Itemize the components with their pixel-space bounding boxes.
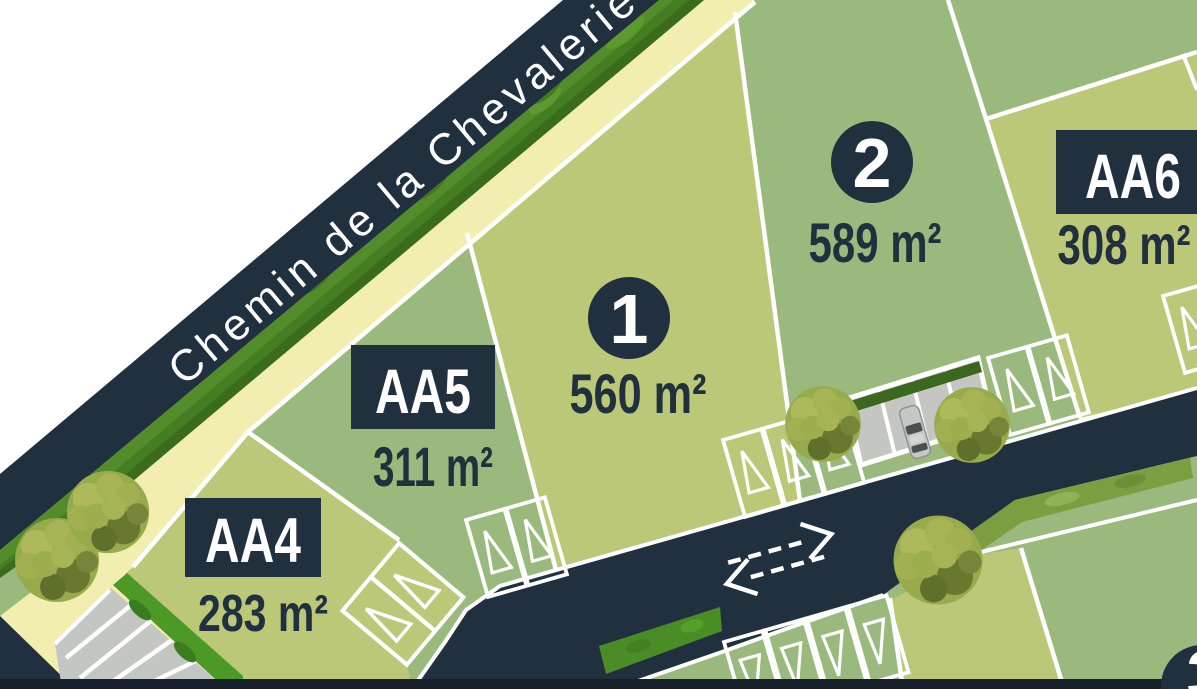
svg-text:3: 3 — [1187, 636, 1197, 689]
svg-text:AA4: AA4 — [205, 506, 301, 576]
svg-text:311 m²: 311 m² — [373, 435, 493, 498]
svg-text:589 m²: 589 m² — [809, 211, 942, 274]
svg-text:560 m²: 560 m² — [570, 362, 707, 425]
svg-text:1: 1 — [610, 280, 649, 358]
svg-text:AA6: AA6 — [1085, 142, 1181, 212]
svg-text:308 m²: 308 m² — [1058, 213, 1191, 276]
svg-text:AA5: AA5 — [375, 357, 471, 427]
svg-text:2: 2 — [853, 124, 892, 202]
svg-text:283 m²: 283 m² — [198, 585, 328, 643]
